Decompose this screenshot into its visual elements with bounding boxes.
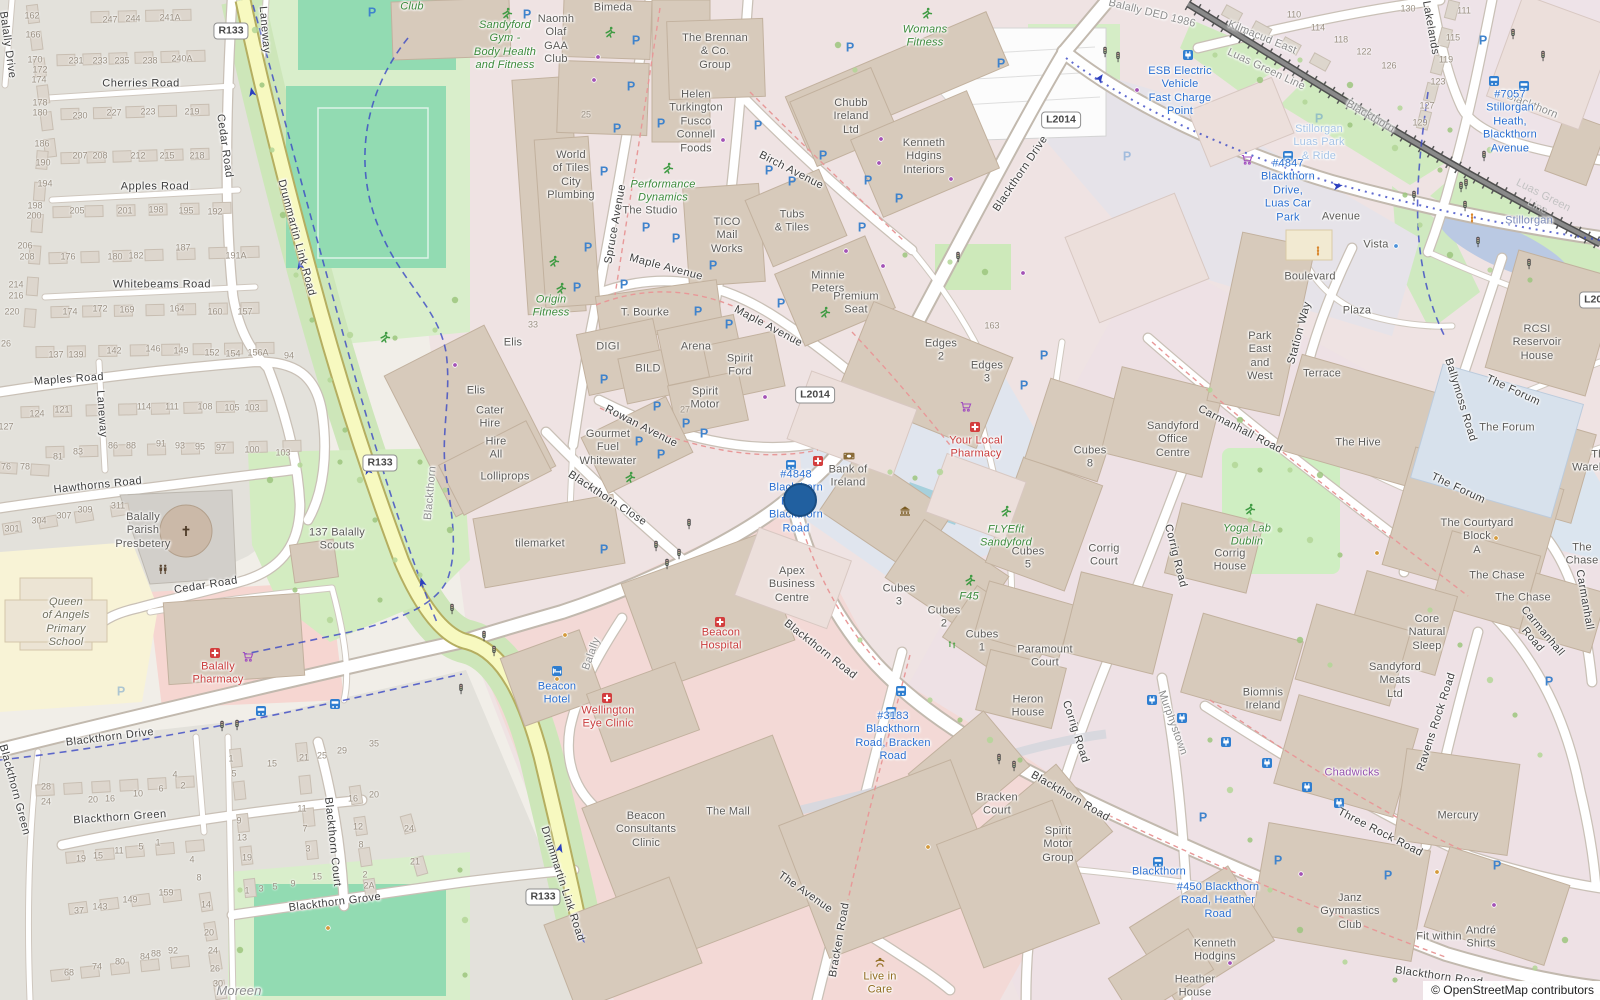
house-building [74,509,94,523]
parking-icon [620,278,628,292]
tree-icon [252,27,258,33]
tree-icon [447,527,453,533]
house-building [81,251,99,263]
poi-dot [326,926,331,931]
house-building [51,306,69,317]
tree-icon [1247,837,1252,842]
poi-dot [1228,961,1233,966]
house-building [173,9,191,20]
house-building [53,206,71,217]
poi-dot [881,264,886,269]
parking-icon [1199,811,1207,825]
tree-icon [1237,417,1243,423]
house-building [99,345,117,356]
house-building [187,50,205,62]
poi-dot [1299,872,1304,877]
parking-icon [653,400,661,414]
house-building [26,277,38,296]
tree-icon [452,297,458,303]
house-building [83,53,101,65]
tree-icon [857,637,862,642]
house-building [240,846,253,865]
house-building [66,851,85,864]
poi-dot [1492,903,1497,908]
house-building [50,969,69,982]
parking-icon [1123,150,1131,164]
tree-icon [1402,192,1407,197]
house-building [83,306,101,317]
house-building [110,503,130,517]
house-building [148,778,167,790]
tree-icon [327,617,333,623]
house-building [113,250,131,262]
parking-icon [997,57,1005,71]
bus-icon [1519,81,1529,91]
house-building [156,842,175,855]
house-building [96,848,115,861]
tree-icon [337,459,342,464]
house-building [177,248,195,260]
parking-icon [858,221,866,235]
house-building [145,249,163,261]
charger-icon [1147,695,1157,705]
house-building [24,309,36,328]
house-building [100,897,119,910]
tree-icon [987,737,993,743]
house-building [215,442,233,453]
parking-icon [682,417,690,431]
tree-icon [377,597,382,602]
parking-icon [584,241,592,255]
tree-icon [887,469,892,474]
tree-icon [1397,105,1402,110]
redcross-icon [602,693,612,703]
charger-icon [1177,713,1187,723]
map-attribution[interactable]: © OpenStreetMap contributors [1423,981,1600,1000]
tree-icon [1257,467,1262,472]
tree-icon [357,477,363,483]
poi-dot [763,395,768,400]
bus-icon [896,686,906,696]
house-building [120,779,139,791]
parking-icon [642,221,650,235]
house-building [237,813,250,832]
tree-icon [1297,57,1302,62]
house-building [117,205,135,216]
tree-icon [457,867,462,872]
house-building [31,214,43,233]
parking-icon [1545,675,1553,689]
house-building [146,304,164,315]
tree-icon [927,697,932,702]
map-canvas[interactable]: P [0,0,1600,1000]
house-building [349,785,363,804]
house-building [139,150,157,162]
parking-icon [657,448,665,462]
tree-icon [1227,787,1233,793]
house-building [40,112,53,131]
house-building [126,106,144,118]
house-building [86,405,104,416]
tree-icon [417,459,422,464]
house-building [21,406,39,417]
poi-dot [592,78,597,83]
tree-icon [835,42,841,48]
redcross-icon [813,456,823,466]
house-building [302,808,315,827]
parking-icon [523,8,531,22]
poi-dot [879,137,884,142]
tree-icon [1257,77,1263,83]
gate-icon [1471,213,1473,222]
house-building [249,400,267,411]
tree-icon [1392,977,1397,982]
house-building [165,149,183,161]
house-building [2,521,22,535]
tree-icon [1247,517,1252,522]
parking-icon [864,174,872,188]
tree-icon [1347,82,1353,88]
house-building [49,252,67,264]
tree-icon [1277,527,1282,532]
tree-icon [1347,122,1352,127]
house-building [233,781,246,800]
tree-icon [1487,267,1492,272]
tree-icon [269,147,274,152]
poi-dot [721,138,726,143]
house-building [36,151,48,170]
poi-dot [1135,88,1140,93]
parking-icon [895,192,903,206]
parking-icon [1315,112,1323,126]
poi-dot [877,161,882,166]
poi-dot [555,677,560,682]
tree-icon [297,462,302,467]
tree-icon [377,455,383,461]
tree-icon [442,487,447,492]
house-building [118,11,136,22]
tree-icon [902,252,907,257]
tree-icon [392,557,397,562]
parking-icon [700,427,708,441]
tree-icon [392,335,397,340]
poi-dot [844,249,849,254]
tree-icon [1267,887,1272,892]
poi-dot [949,177,954,182]
tree-icon [1427,607,1432,612]
house-building [92,781,111,793]
house-building [213,980,227,999]
parking-icon [600,543,608,557]
tree-icon [1437,167,1442,172]
gate-icon [1317,246,1319,255]
tree-icon [417,572,422,577]
poi-dot [1021,271,1026,276]
house-building [67,346,85,357]
house-building [93,107,111,119]
house-building [241,246,259,258]
house-building [162,344,180,355]
house-building [199,892,213,911]
house-building [151,403,169,414]
parking-icon [368,6,376,20]
house-building [158,105,176,117]
parking-icon [1479,34,1487,48]
charger-icon [1334,798,1344,808]
house-building [184,402,202,413]
tree-icon [462,972,467,977]
house-building [209,303,227,314]
house-building [53,405,71,416]
house-building [224,343,242,354]
house-building [359,847,373,866]
tree-icon [432,327,437,332]
parking-icon [600,165,608,179]
parking-icon [632,34,640,48]
house-building [241,302,259,313]
dropped-pin-marker[interactable] [783,483,817,517]
house-building [186,840,205,853]
charger-icon [1221,737,1231,747]
poi-dot [453,363,458,368]
house-building [140,959,159,972]
parking-icon [694,305,702,319]
house-building [110,962,129,975]
parking-icon [754,119,762,133]
house-building [256,342,274,353]
tree-icon [912,475,917,480]
house-building [119,404,137,415]
house-building [131,893,150,906]
tree-icon [347,332,353,338]
tree-icon [1487,147,1493,153]
tree-icon [293,272,298,277]
house-building [36,784,55,796]
tree-icon [267,477,273,483]
bus-icon [1153,857,1163,867]
bus-icon [1489,76,1499,86]
parking-icon [709,259,717,273]
tree-icon [1512,712,1517,717]
parking-icon [846,41,854,55]
bus-icon [1283,151,1293,161]
tree-icon [1527,277,1532,282]
tree-icon [242,987,247,992]
house-building [85,205,103,216]
house-building [283,440,301,451]
bus-icon [786,460,796,470]
house-building [216,401,234,412]
parking-icon [573,281,581,295]
house-building [135,52,153,64]
parking-icon [788,175,796,189]
house-building [0,462,17,474]
house-building [170,956,189,969]
house-building [149,204,167,215]
house-building [57,54,75,66]
house-building [91,11,109,22]
house-building [209,247,227,259]
house-building [114,445,132,456]
bank-icon [844,453,855,460]
house-building [244,878,257,897]
house-building [296,742,309,761]
house-building [193,343,211,354]
poi-dot [926,845,931,850]
house-building [249,441,267,452]
tree-icon [1447,127,1452,132]
tree-icon [1562,937,1568,943]
house-building [113,151,131,163]
tree-icon [1297,637,1303,643]
house-building [306,840,319,859]
tree-icon [982,269,988,275]
hotel-icon [552,666,562,676]
parking-icon [765,164,773,178]
charger-icon [1262,758,1272,768]
house-building [176,776,195,788]
house-building [114,305,132,316]
house-building [29,245,41,264]
house-building [204,922,218,941]
house-building [61,108,79,120]
tree-icon [1317,472,1323,478]
charger-icon [1302,782,1312,792]
tree-icon [292,587,297,592]
house-building [37,85,50,104]
parking-icon [725,318,733,332]
house-building [191,104,209,116]
tree-icon [1307,537,1313,543]
parking-icon [613,122,621,136]
parking-icon [819,149,827,163]
tree-icon [237,887,242,892]
poi-dot [563,633,568,638]
poi-dot [1435,870,1440,875]
parking-icon [117,685,125,699]
tree-icon [1487,677,1493,683]
house-building [38,515,58,529]
house-building [64,782,83,794]
house-building [181,203,199,214]
house-building [80,445,98,456]
tree-icon [259,82,264,87]
house-building [36,346,54,357]
house-building [109,53,127,65]
house-building [178,304,196,315]
tree-icon [937,469,943,475]
tree-icon [1342,959,1347,964]
tree-icon [1207,387,1212,392]
tree-icon [342,427,347,432]
tree-icon [957,717,962,722]
parking-icon [1384,869,1392,883]
bus-icon [256,706,266,716]
tree-icon [1207,737,1212,742]
house-building [208,951,222,970]
house-building [363,878,377,897]
house-building [354,816,368,835]
house-building [191,148,209,160]
house-building [181,443,199,454]
house-building [126,845,145,858]
bus-icon [330,699,340,709]
house-building [61,152,79,164]
tree-icon [852,67,857,72]
tree-icon [1017,757,1022,762]
house-building [26,4,39,23]
house-building [147,444,165,455]
house-building [46,446,64,457]
parking-icon [777,297,785,311]
poi-dot [1375,551,1380,556]
tree-icon [1392,145,1398,151]
parking-icon [1040,349,1048,363]
house-building [299,775,312,794]
tree-icon [237,947,243,953]
poi-dot [1494,536,1499,541]
house-building [68,901,87,914]
poi-dot [1394,244,1399,249]
parking-icon [600,373,608,387]
house-building [146,10,164,21]
tree-icon [1447,252,1453,258]
house-building [213,202,231,213]
tree-icon [1287,467,1292,472]
tree-icon [462,917,468,923]
house-building [130,345,148,356]
parking-icon [627,80,635,94]
charger-icon [1183,50,1193,60]
house-building [33,58,46,77]
redcross-icon [715,617,725,627]
tree-icon [1302,99,1307,104]
tree-icon [1212,52,1217,57]
tree-icon [1297,927,1303,933]
parking-icon [635,435,643,449]
tree-icon [1337,552,1342,557]
tree-icon [280,212,286,218]
tree-icon [1532,965,1537,970]
tree-icon [372,517,377,522]
house-building [162,889,181,902]
tree-icon [1537,752,1542,757]
tree-icon [327,377,332,382]
attribution-text[interactable]: © OpenStreetMap contributors [1431,983,1594,997]
poi-dot [596,55,601,60]
tree-icon [1327,662,1332,667]
parking-icon [1020,379,1028,393]
house-building [33,182,45,201]
house-building [230,748,243,767]
redcross-icon [210,648,220,658]
tree-icon [1417,222,1422,227]
parking-icon [1274,854,1282,868]
tree-icon [309,317,314,322]
parking-icon [1493,859,1501,873]
bus-icon [886,707,896,717]
redcross-icon [970,422,980,432]
tree-icon [1232,462,1238,468]
tree-icon [947,259,952,264]
parking-icon [657,117,665,131]
house-building [80,965,99,978]
parking-icon [672,232,680,246]
house-building [30,31,43,50]
house-building [31,464,50,476]
house-building [161,51,179,63]
tree-icon [1457,642,1462,647]
